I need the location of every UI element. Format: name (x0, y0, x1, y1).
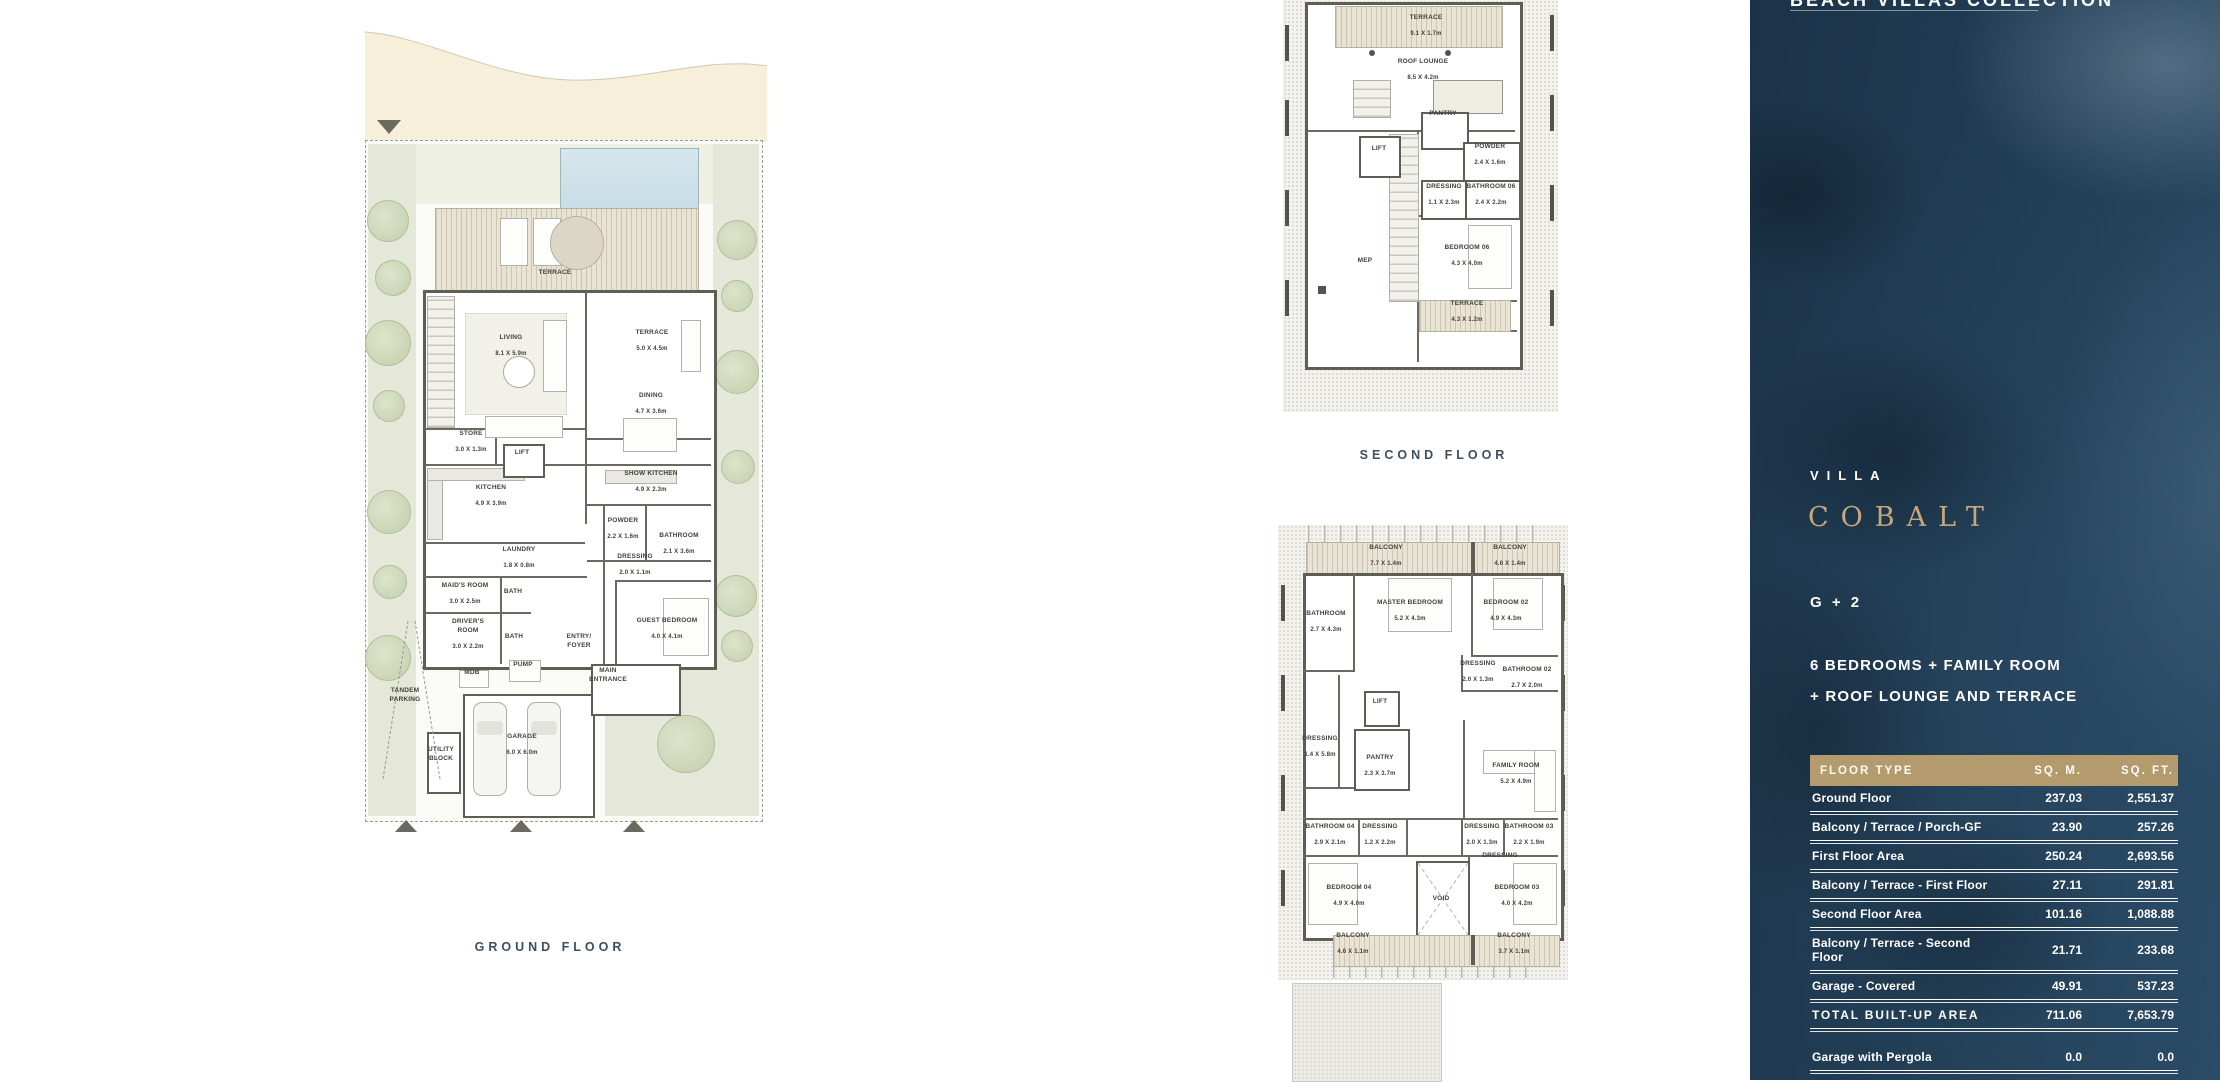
table-row: Second Floor Area 101.16 1,088.88 (1810, 902, 2178, 931)
tree (657, 715, 715, 773)
room-label: MASTER BEDROOM 5.2 X 4.3m (1377, 591, 1443, 633)
room-label: STORE 3.0 X 1.3m (455, 422, 486, 464)
room-name: SHOW KITCHEN (624, 471, 677, 479)
room-label: FAMILY ROOM 5.2 X 4.9m (1492, 754, 1539, 796)
room-name: GARAGE (506, 734, 537, 742)
room-label: BATHROOM 2.1 X 3.6m (659, 524, 698, 566)
sqm-cell: 250.24 (1998, 849, 2086, 863)
table-row: First Floor Area 250.24 2,693.56 (1810, 844, 2178, 873)
table-row: Balcony / Terrace - First Floor 27.11 29… (1810, 873, 2178, 902)
sqft-cell: 2,551.37 (2086, 791, 2178, 805)
header-rule (1790, 10, 2038, 11)
room-label: ENTRY/ FOYER (567, 625, 592, 667)
room-label: POWDER 2.4 X 1.6m (1474, 135, 1505, 177)
room-name: DRIVER'S ROOM (452, 618, 484, 635)
room-label: TERRACE 9.1 X 1.7m (1410, 6, 1443, 48)
table-row: TOTAL AREA 711.06 7,653.79 (1810, 1074, 2178, 1080)
room-label: LIVING 8.1 X 5.9m (495, 326, 526, 368)
room-label: BALCONY 7.7 X 1.4m (1369, 536, 1403, 578)
room-name: BALCONY (1493, 545, 1527, 553)
room-dimensions: 5.2 X 4.9m (1492, 780, 1539, 788)
column-sqft: SQ. FT. (2086, 765, 2178, 777)
room-dimensions: 8.1 X 5.9m (495, 352, 526, 360)
glazing (1550, 15, 1554, 51)
table-header: FLOOR TYPE SQ. M. SQ. FT. (1810, 755, 2178, 786)
column-floor-type: FLOOR TYPE (1810, 765, 1998, 777)
table-body: Ground Floor 237.03 2,551.37 Balcony / T… (1810, 786, 2178, 1032)
room-name: DRESSING (1482, 853, 1518, 861)
ground-floor-plan: TERRACE LIVING 8.1 X 5.9m TERRACE 5.0 X … (365, 20, 767, 840)
room-dimensions: 4.3 X 1.2m (1451, 318, 1484, 326)
column-sqm: SQ. M. (1998, 765, 2086, 777)
inner-wall (587, 504, 711, 506)
room-name: PUMP (513, 662, 533, 670)
inner-wall (615, 580, 617, 664)
room-name: DINING (635, 393, 666, 401)
villa-name: COBALT (1808, 502, 1996, 533)
room-dimensions: 1.1 X 2.3m (1426, 201, 1462, 209)
room-name: ENTRY/ FOYER (567, 633, 592, 650)
floor-type-cell: Ground Floor (1810, 791, 1998, 805)
table-row: Balcony / Terrace / Porch-GF 23.90 257.2… (1810, 815, 2178, 844)
table-gap (1810, 1032, 2178, 1045)
room-label: BEDROOM 03 4.0 X 4.2m (1495, 876, 1540, 918)
room-name: MAIN ENTRANCE (589, 667, 627, 684)
room-dimensions: 2.7 X 2.0m (1502, 684, 1551, 692)
lounge-chair (500, 218, 528, 266)
room-name: STORE (455, 431, 486, 439)
room-dimensions: 4.7 X 3.6m (635, 410, 666, 418)
room-label: LIFT (515, 441, 530, 475)
glazing (1550, 290, 1554, 326)
room-name: TERRACE (636, 330, 669, 338)
room-label: GARAGE 6.0 X 6.0m (506, 725, 537, 767)
room-label: DINING 4.7 X 3.6m (635, 384, 666, 426)
room-label: BEDROOM 06 4.3 X 4.0m (1445, 236, 1490, 278)
glazing (1550, 185, 1554, 221)
room-label: PANTRY 2.3 X 3.7m (1364, 746, 1395, 788)
room-label: UTILITY BLOCK (428, 738, 454, 780)
room-label: BATH (504, 580, 522, 614)
inner-wall (1338, 675, 1340, 787)
inner-wall (1406, 818, 1408, 855)
room-dimensions: 1.4 X 5.8m (1302, 753, 1338, 761)
room-name: FAMILY ROOM (1492, 763, 1539, 771)
floor-type-cell: First Floor Area (1810, 849, 1998, 863)
entry-marker-triangle (623, 820, 645, 832)
glazing (1281, 585, 1285, 621)
room-dimensions: 4.9 X 3.9m (475, 502, 506, 510)
room-label: PANTRY (1429, 102, 1456, 136)
room-label: LIFT (1373, 690, 1388, 724)
inner-wall (1471, 573, 1473, 655)
room-name: LIFT (515, 450, 530, 458)
room-name: BATHROOM (1306, 611, 1345, 619)
glazing (1285, 25, 1289, 61)
pergola-area (1292, 983, 1442, 1082)
room-label: TERRACE (539, 261, 572, 295)
room-label: BALCONY 3.7 X 1.1m (1497, 924, 1531, 966)
room-label: DRESSING 1.4 X 5.8m (1302, 727, 1338, 769)
mep-marker (1318, 286, 1326, 294)
glazing (1550, 95, 1554, 131)
sqft-cell: 1,088.88 (2086, 907, 2178, 921)
room-label: LIFT (1372, 137, 1387, 171)
room-name: BALCONY (1497, 933, 1531, 941)
room-label: TANDEM PARKING (390, 679, 421, 721)
room-dimensions: 4.9 X 2.3m (624, 488, 677, 496)
inner-wall (1358, 818, 1360, 855)
room-name: BATHROOM 03 (1504, 824, 1553, 832)
room-label: DRESSING 2.0 X 1.1m (617, 545, 653, 587)
room-dimensions: 2.0 X 1.3m (1460, 678, 1496, 686)
second-floor-title: SECOND FLOOR (1344, 448, 1524, 462)
room-dimensions: 3.7 X 1.1m (1497, 950, 1531, 958)
glazing (1285, 100, 1289, 136)
room-label: TERRACE 4.3 X 1.2m (1451, 292, 1484, 334)
room-name: DRESSING (1302, 736, 1338, 744)
room-name: BATHROOM (659, 533, 698, 541)
sqft-cell: 2,693.56 (2086, 849, 2178, 863)
room-dimensions: 1.8 X 0.8m (503, 564, 536, 572)
room-name: BEDROOM 04 (1327, 885, 1372, 893)
room-label: LAUNDRY 1.8 X 0.8m (503, 538, 536, 580)
room-name: GUEST BEDROOM (637, 618, 698, 626)
tree (367, 200, 409, 242)
floor-type-cell: Second Floor Area (1810, 907, 1998, 921)
second-floor-plan: TERRACE 9.1 X 1.7m ROOF LOUNGE 8.5 X 4.2… (1283, 0, 1558, 412)
room-dimensions: 2.4 X 2.2m (1466, 201, 1515, 209)
floor-type-cell: Balcony / Terrace - First Floor (1810, 878, 1998, 892)
room-name: TERRACE (1451, 301, 1484, 309)
room-dimensions: 2.1 X 3.6m (659, 550, 698, 558)
room-label: MDB (464, 661, 479, 695)
entry-marker-triangle (510, 820, 532, 832)
room-name: UTILITY BLOCK (428, 746, 454, 763)
room-name: BATH (504, 589, 522, 597)
table-footer: Garage with Pergola 0.0 0.0 TOTAL AREA 7… (1810, 1045, 2178, 1080)
room-name: BATH (505, 634, 523, 642)
room-dimensions: 2.2 X 1.6m (607, 535, 638, 543)
sidebar: BEACH VILLAS COLLECTION VILLA COBALT G +… (1750, 0, 2220, 1080)
room-label: BALCONY 4.6 X 1.4m (1493, 536, 1527, 578)
room-dimensions: 2.7 X 4.3m (1306, 628, 1345, 636)
room-dimensions: 5.0 X 4.5m (636, 347, 669, 355)
room-name: DRESSING (1460, 661, 1496, 669)
sqm-cell: 237.03 (1998, 791, 2086, 805)
room-name: BATHROOM 04 (1305, 824, 1354, 832)
sqft-cell: 233.68 (2086, 943, 2178, 957)
villa-label: VILLA (1810, 468, 1888, 483)
room-dimensions: 4.9 X 4.3m (1484, 617, 1529, 625)
stairs (427, 296, 455, 428)
beach-strip (365, 20, 767, 142)
glazing (1281, 870, 1285, 906)
room-name: PANTRY (1364, 755, 1395, 763)
room-dimensions: 2.3 X 3.7m (1364, 772, 1395, 780)
room-label: BATHROOM 04 2.9 X 2.1m (1305, 815, 1354, 857)
room-label: DRESSING 1.1 X 2.3m (1426, 175, 1462, 217)
inner-wall (1353, 573, 1355, 670)
room-name: POWDER (1474, 144, 1505, 152)
room-dimensions: 4.6 X 1.1m (1336, 950, 1370, 958)
room-name: ROOF LOUNGE (1398, 59, 1449, 67)
room-name: KITCHEN (475, 485, 506, 493)
room-dimensions: 4.3 X 4.0m (1445, 262, 1490, 270)
floor-type-cell: TOTAL BUILT-UP AREA (1810, 1008, 1998, 1022)
room-dimensions: 3.0 X 2.5m (442, 600, 489, 608)
table-row: Ground Floor 237.03 2,551.37 (1810, 786, 2178, 815)
tree (717, 220, 757, 260)
sqft-cell: 257.26 (2086, 820, 2178, 834)
balcony-divider-wall (1471, 542, 1475, 573)
tree (373, 390, 405, 422)
room-dimensions: 2.9 X 2.1m (1305, 841, 1354, 849)
room-label: BALCONY 4.6 X 1.1m (1336, 924, 1370, 966)
sqm-cell: 49.91 (1998, 979, 2086, 993)
table-row: Garage with Pergola 0.0 0.0 (1810, 1045, 2178, 1074)
room-name: LIFT (1372, 146, 1387, 154)
room-label: BEDROOM 04 4.9 X 4.0m (1327, 876, 1372, 918)
sqft-cell: 537.23 (2086, 979, 2178, 993)
room-name: PANTRY (1429, 111, 1456, 119)
floor-type-cell: Balcony / Terrace - Second Floor (1810, 936, 1998, 964)
floor-type-cell: Balcony / Terrace / Porch-GF (1810, 820, 1998, 834)
room-label: DRESSING 2.0 X 1.3m (1460, 652, 1496, 694)
room-dimensions: 4.0 X 4.2m (1495, 902, 1540, 910)
room-name: BALCONY (1336, 933, 1370, 941)
room-label: TERRACE 5.0 X 4.5m (636, 321, 669, 363)
room-name: TANDEM PARKING (390, 687, 421, 704)
inner-wall (1303, 670, 1355, 672)
room-name: DRESSING (1362, 824, 1398, 832)
sqm-cell: 711.06 (1998, 1008, 2086, 1022)
sqft-cell: 7,653.79 (2086, 1008, 2178, 1022)
inner-wall (1463, 720, 1465, 820)
table-row: Balcony / Terrace - Second Floor 21.71 2… (1810, 931, 2178, 974)
room-name: MEP (1358, 258, 1373, 266)
room-dimensions: 4.0 X 4.1m (637, 635, 698, 643)
room-name: MASTER BEDROOM (1377, 600, 1443, 608)
room-dimensions: 4.6 X 1.4m (1493, 562, 1527, 570)
tree (365, 320, 411, 366)
room-name: DRESSING (617, 554, 653, 562)
room-name: DRESSING (1464, 824, 1500, 832)
tree (715, 350, 759, 394)
sofa (543, 320, 567, 392)
pool (560, 148, 699, 212)
room-name: MDB (464, 670, 479, 678)
beach-marker-triangle (377, 120, 401, 134)
table-row: Garage - Covered 49.91 537.23 (1810, 974, 2178, 1003)
room-label: BATHROOM 02 2.7 X 2.0m (1502, 658, 1551, 700)
room-dimensions: 2.0 X 1.1m (617, 571, 653, 579)
sqm-cell: 101.16 (1998, 907, 2086, 921)
room-label: SHOW KITCHEN 4.9 X 2.3m (624, 462, 677, 504)
floor-area-table: FLOOR TYPE SQ. M. SQ. FT. Ground Floor 2… (1810, 755, 2178, 1080)
room-name: BEDROOM 06 (1445, 245, 1490, 253)
room-name: POWDER (607, 518, 638, 526)
inner-wall (1307, 130, 1515, 132)
tree (367, 490, 411, 534)
room-name: LIFT (1373, 699, 1388, 707)
room-dimensions: 8.5 X 4.2m (1398, 76, 1449, 84)
balcony-divider-wall (1471, 935, 1475, 965)
tree (721, 450, 755, 484)
room-name: BEDROOM 02 (1484, 600, 1529, 608)
car (473, 702, 507, 796)
sofa (485, 416, 563, 438)
sqm-cell: 27.11 (1998, 878, 2086, 892)
room-dimensions: 9.1 X 1.7m (1410, 32, 1443, 40)
storeys-label: G + 2 (1810, 594, 1862, 611)
room-label: DRESSING (1482, 844, 1518, 878)
sqm-cell: 21.71 (1998, 943, 2086, 957)
inner-wall (1461, 818, 1463, 855)
room-name: BEDROOM 03 (1495, 885, 1540, 893)
inner-wall (603, 504, 605, 664)
tree (715, 575, 757, 617)
table-row: TOTAL BUILT-UP AREA 711.06 7,653.79 (1810, 1003, 2178, 1032)
ceiling-light (1369, 50, 1375, 56)
room-name: LIVING (495, 335, 526, 343)
floor-type-cell: Garage with Pergola (1810, 1050, 1998, 1064)
glazing (1285, 190, 1289, 226)
room-dimensions: 3.0 X 1.3m (455, 448, 486, 456)
room-dimensions: 2.4 X 1.6m (1474, 161, 1505, 169)
inner-wall (585, 292, 587, 524)
room-name: BATHROOM 02 (1502, 667, 1551, 675)
room-label: VOID (1433, 887, 1450, 921)
tree (375, 260, 411, 296)
villa-description: 6 BEDROOMS + FAMILY ROOM + ROOF LOUNGE A… (1810, 650, 2077, 712)
room-dimensions: 4.9 X 4.0m (1327, 902, 1372, 910)
outdoor-sofa (681, 320, 701, 372)
room-name: BATHROOM 06 (1466, 184, 1515, 192)
room-dimensions: 3.0 X 2.2m (452, 644, 484, 652)
room-dimensions: 5.2 X 4.3m (1377, 617, 1443, 625)
sqm-cell: 0.0 (1998, 1050, 2086, 1064)
sqft-cell: 0.0 (2086, 1050, 2178, 1064)
sqft-cell: 291.81 (2086, 878, 2178, 892)
glazing (1285, 280, 1289, 316)
floor-type-cell: Garage - Covered (1810, 979, 1998, 993)
stairs (1353, 80, 1391, 118)
room-label: MAIN ENTRANCE (589, 659, 627, 701)
room-name: BALCONY (1369, 545, 1403, 553)
room-dimensions: 7.7 X 1.4m (1369, 562, 1403, 570)
room-label: PUMP (513, 653, 533, 687)
room-name: MAID'S ROOM (442, 583, 489, 591)
room-name: TERRACE (539, 270, 572, 278)
room-label: ROOF LOUNGE 8.5 X 4.2m (1398, 50, 1449, 92)
room-label: GUEST BEDROOM 4.0 X 4.1m (637, 609, 698, 651)
inner-wall (500, 576, 502, 664)
room-label: BATHROOM 2.7 X 4.3m (1306, 602, 1345, 644)
room-label: KITCHEN 4.9 X 3.9m (475, 476, 506, 518)
sqm-cell: 23.90 (1998, 820, 2086, 834)
room-label: DRESSING 1.2 X 2.2m (1362, 815, 1398, 857)
tree (721, 630, 753, 662)
room-name: VOID (1433, 896, 1450, 904)
room-dimensions: 1.2 X 2.2m (1362, 841, 1398, 849)
entry-marker-triangle (395, 820, 417, 832)
room-name: DRESSING (1426, 184, 1462, 192)
first-floor-plan: BALCONY 7.7 X 1.4m BALCONY 4.6 X 1.4m BA… (1278, 525, 1568, 1080)
ground-floor-title: GROUND FLOOR (460, 940, 640, 954)
description-line-2: + ROOF LOUNGE AND TERRACE (1810, 681, 2077, 712)
room-label: BATHROOM 06 2.4 X 2.2m (1466, 175, 1515, 217)
room-label: MEP (1358, 249, 1373, 283)
room-name: LAUNDRY (503, 547, 536, 555)
room-label: DRIVER'S ROOM 3.0 X 2.2m (452, 610, 484, 660)
room-label: BEDROOM 02 4.9 X 4.3m (1484, 591, 1529, 633)
tree (721, 280, 753, 312)
room-name: TERRACE (1410, 15, 1443, 23)
room-dimensions: 6.0 X 6.0m (506, 751, 537, 759)
description-line-1: 6 BEDROOMS + FAMILY ROOM (1810, 650, 2077, 681)
glazing (1281, 775, 1285, 811)
tree (373, 565, 407, 599)
glazing (1281, 675, 1285, 711)
